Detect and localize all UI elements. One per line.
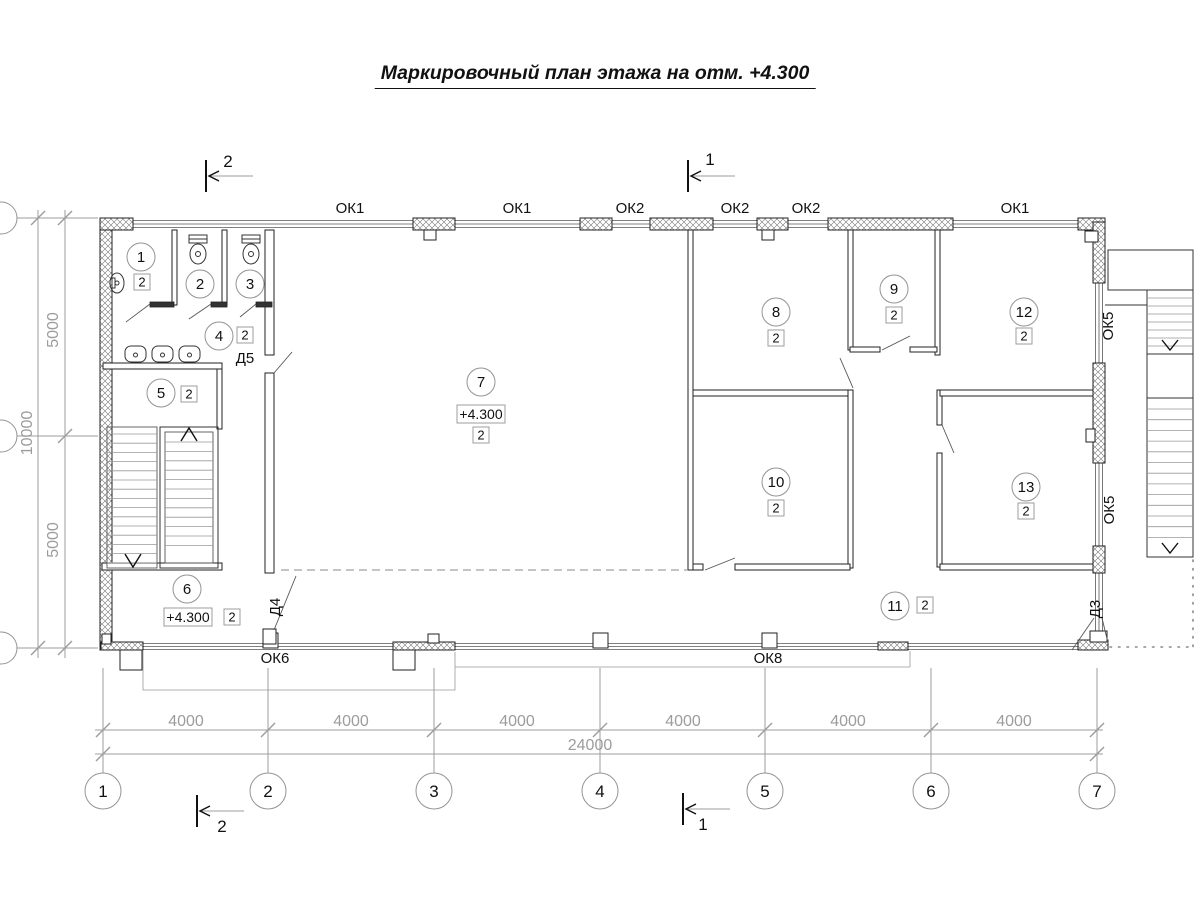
- toilet-icon: [189, 235, 207, 264]
- section-number: 2: [217, 817, 226, 836]
- type-badge-value: 2: [1022, 504, 1029, 519]
- room-number: 10: [768, 474, 785, 491]
- section-mark: 1: [688, 150, 735, 192]
- section-mark: 2: [197, 795, 244, 836]
- section-number: 2: [223, 152, 232, 171]
- sink-icon: [110, 273, 124, 293]
- stair-down-arrow: [1162, 340, 1178, 350]
- room-marker: 82: [762, 298, 790, 346]
- room-number: 1: [137, 249, 145, 266]
- toilet-icon: [242, 235, 260, 264]
- type-badge-value: 2: [921, 598, 928, 613]
- terrace-outline: [143, 651, 910, 690]
- section-mark: 2: [206, 152, 253, 192]
- room-number: 7: [477, 374, 485, 391]
- axis-number: 6: [926, 782, 935, 801]
- room-marker: 92: [880, 275, 908, 323]
- section-number: 1: [698, 815, 707, 834]
- section-number: 1: [705, 150, 714, 169]
- room-number: 8: [772, 304, 780, 321]
- window-mark-label: ОК5: [1100, 312, 1117, 341]
- door-mark-label: Д3: [1087, 600, 1104, 619]
- window-mark-label: ОК1: [336, 200, 365, 217]
- axis-bubble: [0, 632, 17, 664]
- type-badge-value: 2: [138, 275, 145, 290]
- window-mark-label: ОК5: [1101, 496, 1118, 525]
- type-badge-value: 2: [890, 308, 897, 323]
- room-marker: 42: [205, 322, 253, 350]
- stair-treads: [165, 442, 213, 545]
- room-number: 5: [157, 385, 165, 402]
- dimension-total-value: 24000: [568, 737, 613, 754]
- room-marker: 7+4.3002: [457, 368, 505, 443]
- axis-number: 2: [263, 782, 272, 801]
- type-badge-value: 2: [772, 501, 779, 516]
- washbasin-icon: [125, 346, 146, 362]
- room-marker: 132: [1012, 473, 1040, 519]
- stair-treads: [1147, 298, 1193, 346]
- axis-number: 3: [429, 782, 438, 801]
- room-marker: 112: [881, 592, 933, 620]
- type-badge-value: 2: [185, 387, 192, 402]
- room-number: 4: [215, 328, 223, 345]
- type-badge-value: 2: [241, 328, 248, 343]
- room-number: 6: [183, 581, 191, 598]
- dimension-value: 4000: [665, 713, 701, 730]
- room-marker: 12: [127, 243, 155, 290]
- section-mark: 1: [683, 793, 730, 834]
- external-staircase: [1105, 250, 1193, 647]
- door-mark-label: Д4: [267, 598, 284, 617]
- axis-number: 1: [98, 782, 107, 801]
- type-badge-value: 2: [228, 610, 235, 625]
- type-badge-value: 2: [477, 428, 484, 443]
- door-mark-label: Д5: [236, 350, 255, 367]
- room-marker: 52: [147, 379, 197, 407]
- room-marker: 3: [236, 270, 264, 298]
- axis-bubble: [0, 420, 17, 452]
- room-number: 11: [887, 598, 903, 615]
- dimension-value: 5000: [45, 522, 62, 558]
- room-number: 9: [890, 281, 898, 298]
- drawing-sheet: Маркировочный план этажа на отм. +4.300: [0, 0, 1200, 900]
- window-mark-label: ОК1: [1001, 200, 1030, 217]
- axis-number: 5: [760, 782, 769, 801]
- window-mark-label: ОК2: [792, 200, 821, 217]
- dimension-value: 4000: [333, 713, 369, 730]
- stair-treads: [1147, 409, 1193, 537]
- dimension-value: 4000: [996, 713, 1032, 730]
- stair-treads: [107, 434, 157, 563]
- stair-up-arrow: [181, 428, 197, 441]
- room-marker: 102: [762, 468, 790, 516]
- elevation-value: +4.300: [459, 406, 502, 422]
- axis-bubble: [0, 202, 17, 234]
- room-number: 2: [196, 276, 204, 293]
- room-number: 3: [246, 276, 254, 293]
- window-mark-label: ОК2: [616, 200, 645, 217]
- window-mark-label: ОК8: [754, 650, 783, 667]
- type-badge-value: 2: [772, 331, 779, 346]
- window-mark-label: ОК6: [261, 650, 290, 667]
- room-marker: 6+4.3002: [164, 575, 240, 626]
- axis-number: 4: [595, 782, 604, 801]
- window-mark-label: ОК2: [721, 200, 750, 217]
- dimension-value: 4000: [168, 713, 204, 730]
- dimension-value: 5000: [45, 312, 62, 348]
- stair-down-arrow: [1162, 543, 1178, 553]
- dimension-value: 4000: [499, 713, 535, 730]
- type-badge-value: 2: [1020, 329, 1027, 344]
- room-marker: 122: [1010, 298, 1038, 344]
- room-marker: 2: [186, 270, 214, 298]
- axis-number: 7: [1092, 782, 1101, 801]
- room-number: 13: [1018, 479, 1035, 496]
- washbasin-icon: [179, 346, 200, 362]
- room-number: 12: [1016, 304, 1033, 321]
- washbasin-icon: [152, 346, 173, 362]
- dimension-value: 4000: [830, 713, 866, 730]
- elevation-value: +4.300: [166, 609, 209, 625]
- internal-staircase: [107, 427, 218, 568]
- dimension-value: 10000: [19, 411, 36, 456]
- window-mark-label: ОК1: [503, 200, 532, 217]
- floor-plan-drawing: 122342526+4.30027+4.30028292102112122132…: [0, 0, 1200, 900]
